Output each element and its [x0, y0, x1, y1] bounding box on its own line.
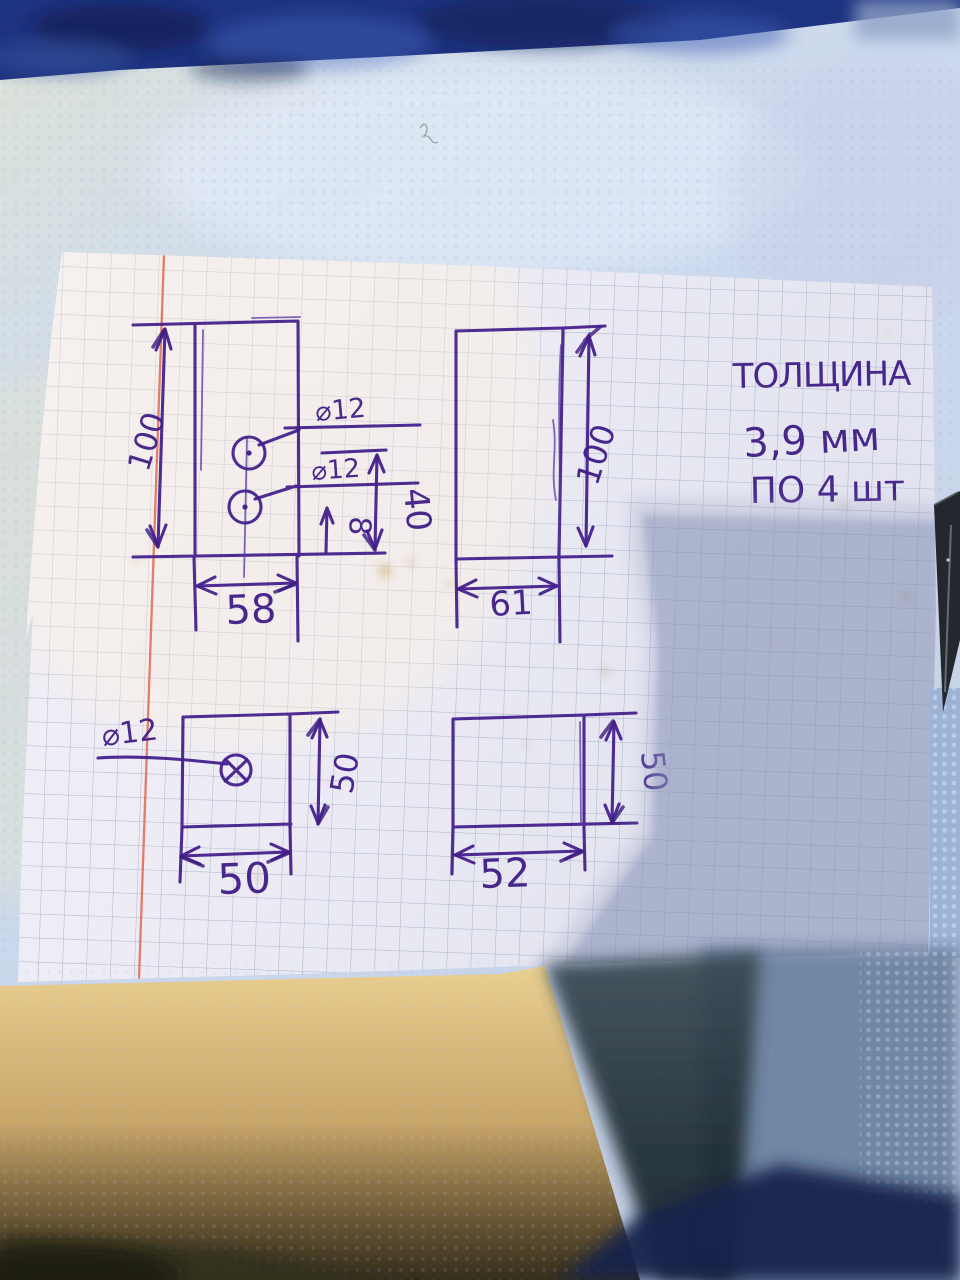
part1-hole1-label: ⌀12	[314, 393, 367, 428]
note-thickness: 3,9 мм	[742, 414, 881, 467]
part3-height-dim-line	[318, 720, 320, 823]
part1-hole1-center	[246, 450, 251, 455]
part3-hole-label: ⌀12	[100, 712, 160, 754]
part1-edge-label: 8	[341, 516, 377, 536]
right-fabric-dots	[930, 688, 960, 958]
part4-outline-double	[580, 722, 581, 825]
blade-speck	[946, 558, 949, 561]
part4-width-label: 52	[479, 850, 531, 898]
part1-hole2-label: ⌀12	[310, 454, 361, 487]
bottom-right-dots	[860, 950, 960, 1220]
part4-height-dim-line	[612, 722, 614, 822]
part3-width-label: 50	[217, 853, 272, 904]
part1-width-label: 58	[225, 586, 277, 634]
part2-width-label: 61	[488, 583, 533, 625]
note-title: ТОЛЩИНА	[731, 354, 911, 397]
part1-hole2-center	[242, 504, 247, 509]
part1-offset-label: 40	[395, 486, 439, 533]
right-fabric	[930, 688, 960, 958]
photo-of-sketch: 100 ⌀12 ⌀12 40 8 58	[0, 0, 960, 1280]
part3-height-label: 50	[322, 750, 366, 797]
bottom-foreground	[0, 948, 960, 1280]
sketch-photo-svg: 100 ⌀12 ⌀12 40 8 58	[0, 0, 960, 1280]
